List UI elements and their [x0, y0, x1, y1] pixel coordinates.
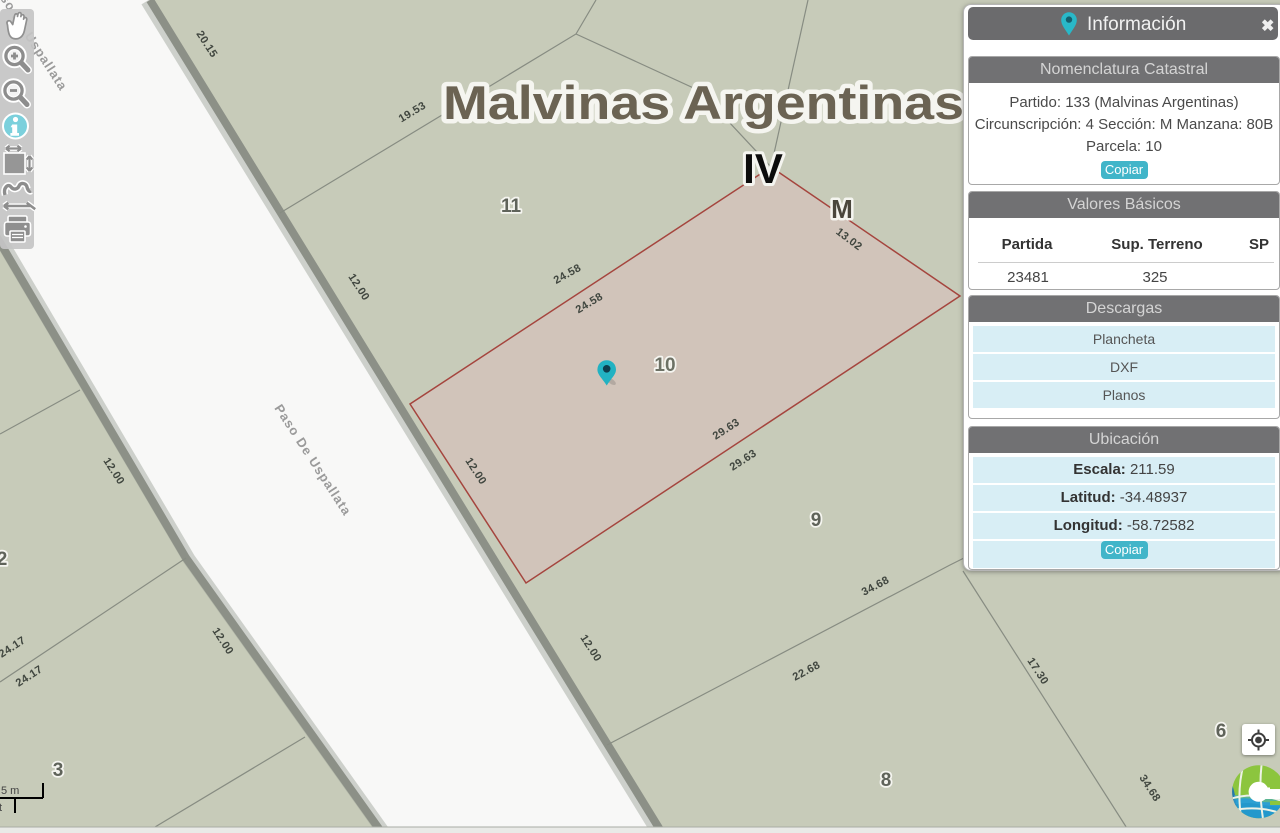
svg-text:9: 9: [811, 510, 822, 531]
svg-text:ft: ft: [0, 802, 2, 814]
svg-text:5 m: 5 m: [1, 785, 19, 797]
svg-text:2: 2: [0, 549, 7, 570]
svg-text:6: 6: [1216, 721, 1227, 742]
svg-text:Malvinas Argentinas: Malvinas Argentinas: [443, 76, 964, 129]
svg-text:IV: IV: [743, 145, 783, 192]
svg-text:8: 8: [881, 770, 892, 791]
svg-text:M: M: [831, 194, 853, 224]
svg-text:10: 10: [654, 355, 675, 376]
svg-text:11: 11: [501, 196, 522, 217]
svg-text:3: 3: [53, 760, 64, 781]
